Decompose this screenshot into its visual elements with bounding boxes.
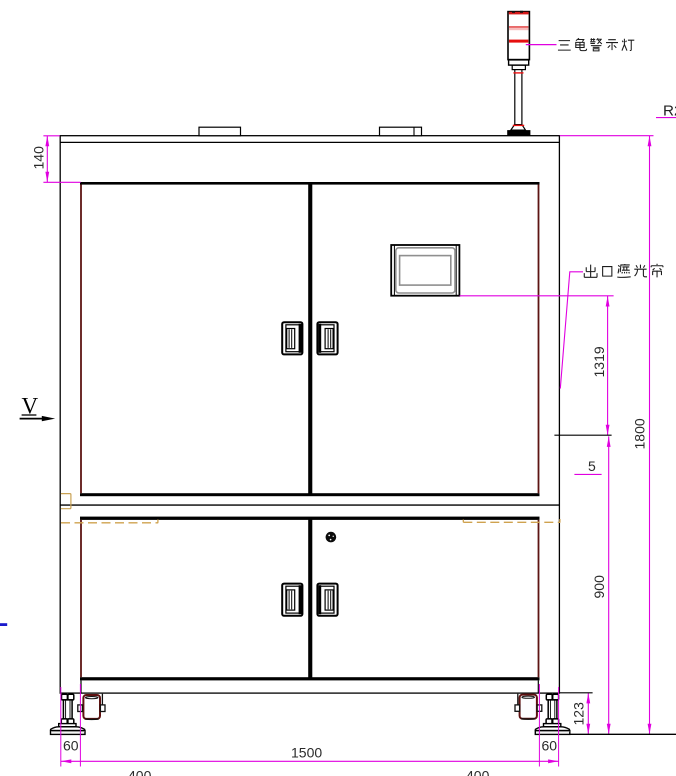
svg-text:140: 140 xyxy=(31,146,47,170)
svg-text:900: 900 xyxy=(591,575,607,599)
svg-text:400: 400 xyxy=(128,768,152,776)
svg-text:400: 400 xyxy=(466,768,490,776)
svg-text:1319: 1319 xyxy=(591,346,607,377)
svg-text:R2: R2 xyxy=(663,103,676,120)
svg-text:123: 123 xyxy=(571,702,587,726)
svg-text:1500: 1500 xyxy=(291,745,322,761)
svg-text:60: 60 xyxy=(542,738,558,754)
svg-text:5: 5 xyxy=(588,458,596,474)
svg-text:1800: 1800 xyxy=(632,418,648,449)
svg-text:60: 60 xyxy=(63,738,79,754)
